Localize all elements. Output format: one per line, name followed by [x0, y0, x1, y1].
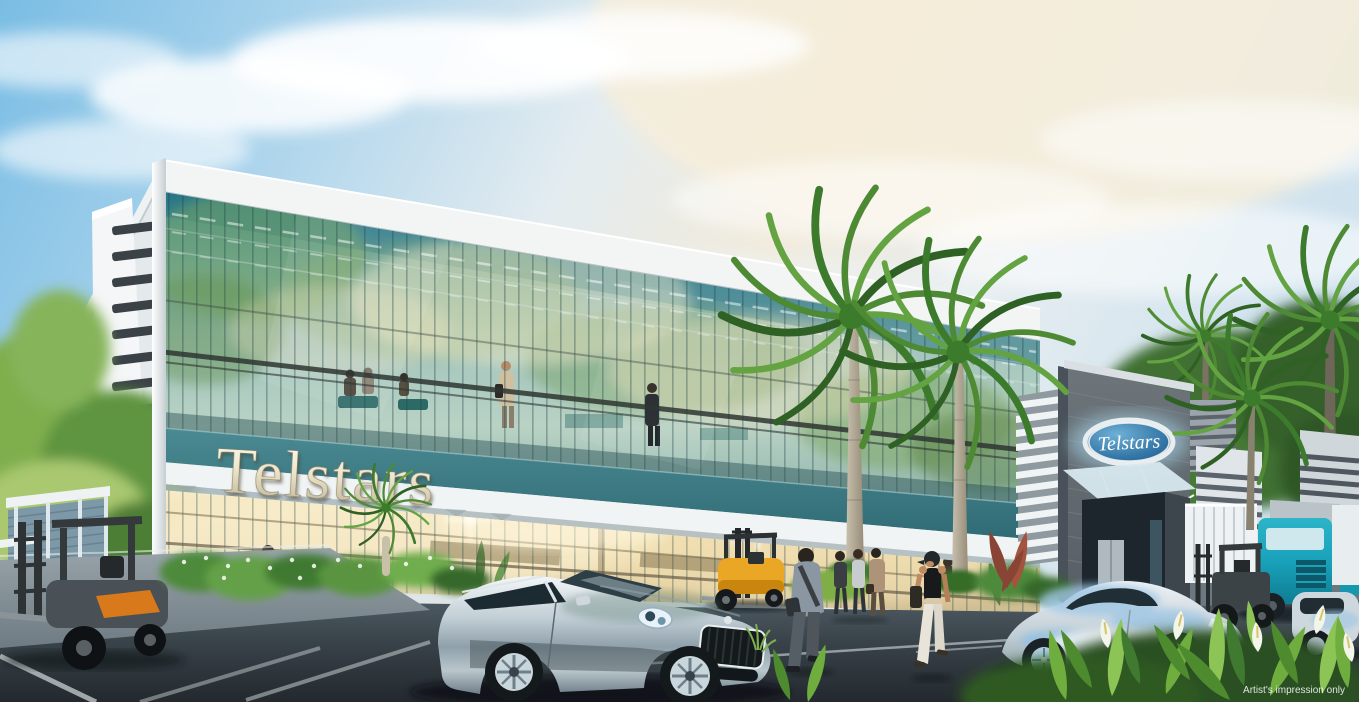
black-tank-top — [924, 568, 941, 602]
forklift-seat — [100, 556, 124, 578]
caption-artists-impression: Artist's impression only — [1243, 685, 1345, 696]
shipping-container-right — [1332, 505, 1359, 585]
shoulder-bag — [910, 586, 922, 608]
suv-emblem — [724, 616, 732, 624]
logo-badge-text: Telstars — [1097, 430, 1161, 455]
suv-rear-wheel — [485, 643, 543, 701]
rendering-canvas: Telstars — [0, 0, 1359, 702]
telstars-logo-badge: Telstars — [1069, 412, 1189, 472]
corner-pilaster — [152, 158, 166, 606]
truck-windshield — [1266, 528, 1324, 550]
scene-rendering: Telstars — [0, 0, 1359, 702]
forklift-rollbar — [52, 520, 142, 524]
